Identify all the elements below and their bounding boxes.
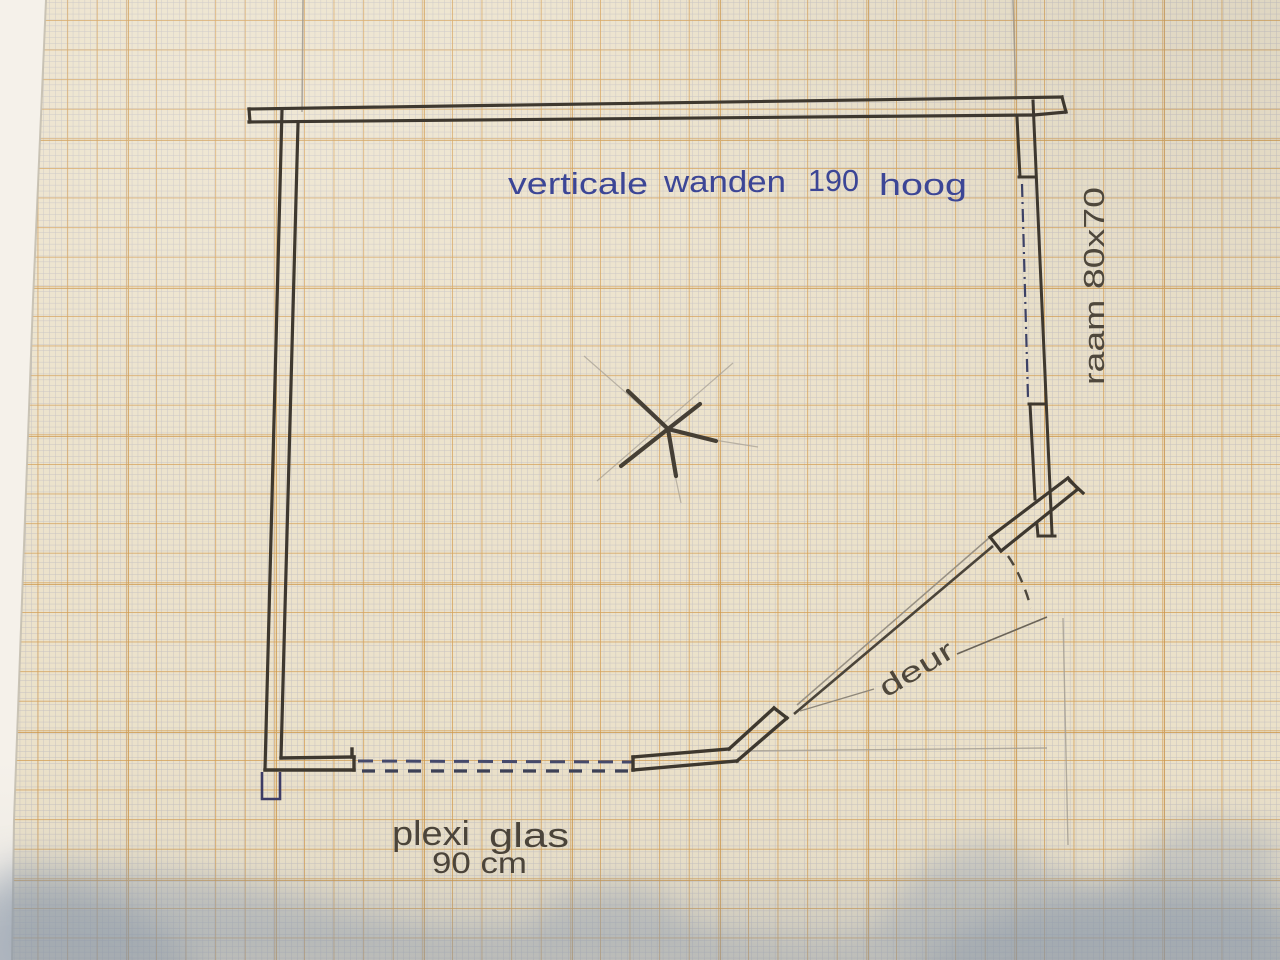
svg-text:raam 80x70: raam 80x70 [1079,187,1111,385]
svg-text:wanden: wanden [663,164,786,199]
svg-text:verticale: verticale [508,166,648,201]
svg-text:hoog: hoog [879,167,967,202]
svg-text:90 cm: 90 cm [432,847,527,880]
svg-text:190: 190 [808,163,859,198]
